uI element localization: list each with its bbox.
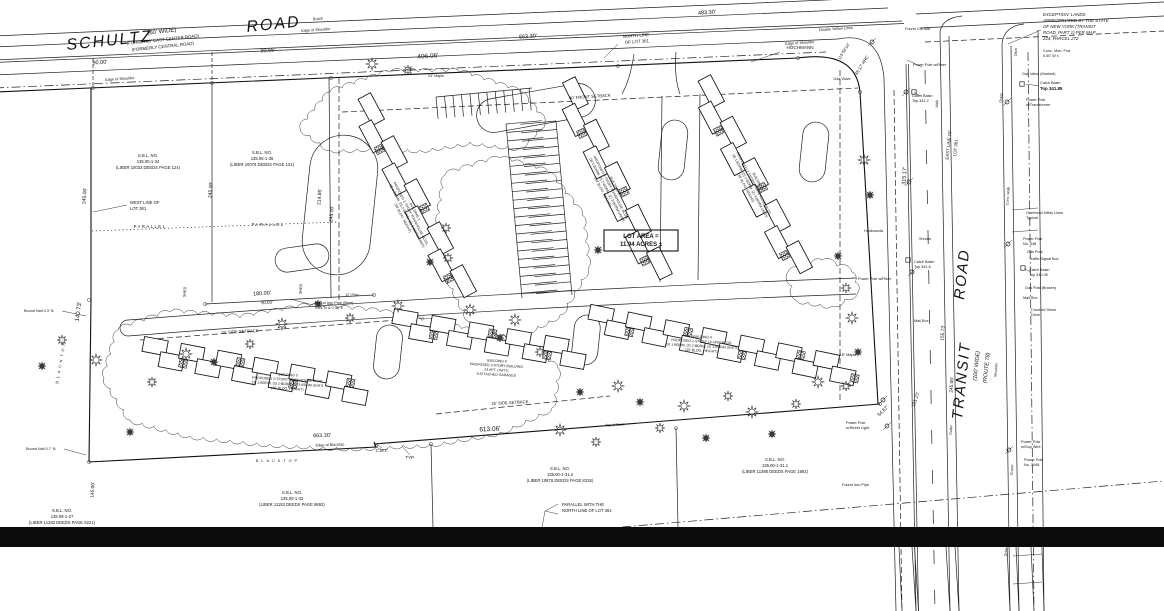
tree-icon bbox=[147, 377, 157, 387]
tree-icon bbox=[612, 380, 624, 392]
plan-label: Bound Nail 0.7' N bbox=[26, 447, 56, 451]
plan-label: Found Iron Pipe bbox=[842, 483, 869, 487]
plan-label: 135.00-1-31.2 bbox=[547, 472, 574, 477]
plan-label: 135.00-1-35 bbox=[251, 156, 274, 161]
plan-label: 18" Maple bbox=[840, 353, 857, 357]
monument-icon bbox=[87, 298, 90, 301]
boundary-lines bbox=[89, 52, 1164, 534]
plan-label: Ditch bbox=[1014, 48, 1019, 56]
landscape-cloud-outlines bbox=[102, 68, 859, 451]
plan-label: LOT 361 bbox=[130, 206, 147, 211]
tree-icon bbox=[366, 58, 378, 70]
parking-stall-line bbox=[512, 188, 548, 191]
plan-label: 483.30' bbox=[698, 9, 716, 16]
plan-label: Conc. Walk bbox=[1005, 186, 1010, 205]
schultz-road-word: ROAD bbox=[246, 13, 302, 36]
hatched-patio bbox=[429, 331, 438, 340]
plan-label: Power Pole bbox=[846, 421, 865, 425]
plan-label: 663.30' bbox=[313, 433, 331, 440]
plan-label: Brush bbox=[313, 17, 323, 22]
plan-label: Mail Box bbox=[914, 319, 929, 323]
tree-icon bbox=[841, 283, 851, 293]
proposed-buildings bbox=[142, 75, 860, 406]
plan-label: Mail Box bbox=[1023, 296, 1038, 300]
plan-label: 90.00' bbox=[92, 59, 107, 66]
building-unit bbox=[646, 247, 672, 280]
plan-label: Top 341.6 bbox=[914, 265, 931, 269]
hatched-patio bbox=[850, 374, 859, 383]
hatched-patio bbox=[625, 327, 634, 336]
plan-label: (ROUTE 78) bbox=[982, 352, 991, 383]
plan-label: Gas Valve bbox=[833, 77, 850, 81]
plan-label: OF NEW YORK (TRANSIT bbox=[1043, 24, 1096, 29]
plan-label: 24" Maple bbox=[428, 74, 444, 78]
tree-icon bbox=[655, 423, 665, 433]
building-unit bbox=[830, 366, 860, 386]
plan-label: Power Pole bbox=[1026, 98, 1045, 102]
plan-label: 45.17' ARC bbox=[854, 55, 870, 76]
parking-stall-line bbox=[511, 180, 547, 183]
plan-label: 140.73' bbox=[75, 302, 84, 322]
parking-stall-line bbox=[526, 180, 562, 183]
hatched-patio bbox=[346, 378, 355, 387]
plan-label: Gas Post (Broken) bbox=[1025, 286, 1057, 290]
parking-stall-line bbox=[461, 95, 463, 117]
parking-stall-line bbox=[515, 222, 551, 225]
tree-icon bbox=[591, 437, 601, 447]
plan-label: Edge of Shoulder bbox=[105, 76, 135, 82]
tree-icon bbox=[791, 399, 801, 409]
plan-label: Gravel bbox=[1010, 464, 1015, 475]
parking-stall-line bbox=[508, 146, 544, 149]
plan-label: 135.00-1-34 bbox=[137, 159, 160, 164]
plan-label: 613.06' bbox=[479, 425, 500, 433]
plan-label: 0.55' N & 0.32' E bbox=[315, 306, 344, 310]
parking-stall-line bbox=[506, 121, 542, 124]
plan-label: S.B.L. NO. bbox=[252, 150, 272, 155]
tree-icon bbox=[345, 313, 355, 323]
hatched-patio bbox=[488, 329, 497, 338]
tree-icon bbox=[834, 252, 842, 260]
parking-aisle-line bbox=[436, 88, 532, 97]
hatched-patio bbox=[178, 359, 187, 368]
parking-aisle-line bbox=[556, 121, 572, 295]
plan-label: Grass bbox=[999, 93, 1004, 103]
plan-label: 115°58'14" bbox=[837, 41, 852, 60]
parking-stall-line bbox=[495, 91, 497, 113]
driveway-stub bbox=[274, 242, 331, 273]
parking-stall-line bbox=[533, 265, 569, 268]
tree-icon bbox=[866, 191, 874, 199]
parking-stall-line bbox=[533, 256, 569, 259]
driveway-stub bbox=[372, 324, 404, 380]
parking-stall-line bbox=[504, 91, 506, 113]
plan-label: Drive bbox=[1031, 313, 1040, 317]
tree-icon bbox=[746, 406, 758, 418]
plan-label: Bound Nail 0.3' N bbox=[24, 309, 54, 313]
parking-stalls bbox=[436, 88, 572, 298]
plan-label: Power Pole w/Riser bbox=[913, 63, 947, 67]
plan-label: S.B.L. NO. bbox=[138, 153, 158, 158]
parking-stall-line bbox=[522, 138, 558, 141]
tree-icon bbox=[594, 246, 602, 254]
parking-stall-line bbox=[519, 256, 555, 259]
parking-stall-line bbox=[509, 155, 545, 158]
plan-label: Catch Basin bbox=[1029, 268, 1049, 272]
tree-icon bbox=[210, 358, 218, 366]
plan-label: 135.09-1-27 bbox=[51, 514, 74, 519]
parking-stall-line bbox=[511, 172, 547, 175]
plan-label: PARALLEL WITH THE bbox=[562, 502, 604, 507]
plan-label: 135.00-1-32 bbox=[281, 496, 304, 501]
plan-label: 25' SIDE SETBACK bbox=[221, 328, 259, 335]
plan-label: 0.50' W ± bbox=[1043, 54, 1059, 58]
plan-label: LOT 361 bbox=[952, 139, 959, 157]
plan-label: 245.00' bbox=[948, 377, 955, 393]
plan-label: OF LOT 361 bbox=[625, 38, 650, 45]
plan-label: Shrubs bbox=[919, 237, 931, 241]
building-unit bbox=[560, 350, 586, 369]
tree-icon bbox=[768, 430, 776, 438]
parking-stall-line bbox=[532, 248, 568, 251]
parking-stall-line bbox=[528, 206, 564, 209]
driveway-stub bbox=[299, 132, 381, 278]
plan-label: APPROPRIATED BY THE STATE bbox=[1042, 18, 1109, 23]
plan-label: Traffic Signal Box bbox=[1029, 257, 1059, 261]
plan-label: (LIBER 10033 DEEDS PAGE 124) bbox=[116, 165, 181, 170]
plan-label: EXCEPTION: LANDS bbox=[1043, 12, 1086, 17]
plan-label: Power Pole w/Riser bbox=[858, 277, 892, 281]
hatched-patio bbox=[236, 357, 245, 366]
plan-label: Gutter bbox=[949, 424, 954, 435]
parking-stall-line bbox=[513, 197, 549, 200]
tree-icon bbox=[464, 304, 476, 316]
power-pole-icon bbox=[1004, 240, 1012, 248]
plan-label: 180.00' bbox=[253, 291, 271, 298]
parking-stall-line bbox=[529, 214, 565, 217]
transit-road-lines-below-seam bbox=[899, 547, 1044, 611]
parking-stall-line bbox=[531, 240, 567, 243]
plan-label: 245.00' bbox=[81, 188, 88, 205]
power-pole-icon bbox=[879, 396, 887, 404]
plan-label: No. 2048 bbox=[1024, 463, 1039, 467]
parking-stall-line bbox=[487, 92, 489, 114]
plan-label: (LIBER 11153 DEEDS PAGE 8892) bbox=[259, 502, 325, 507]
parking-stall-line bbox=[515, 214, 551, 217]
plan-label: No. 348 bbox=[1023, 242, 1036, 246]
plan-label: Power Pole bbox=[1023, 237, 1042, 241]
parking-stall-line bbox=[508, 138, 544, 141]
plan-label: PARALLEL bbox=[252, 222, 285, 227]
plan-label: S.B.L. NO. bbox=[550, 466, 570, 471]
tree-icon bbox=[126, 428, 134, 436]
transit-road-lines bbox=[894, 16, 1044, 611]
plan-label: S.B.L. NO. bbox=[52, 508, 72, 513]
parking-stall-line bbox=[520, 273, 556, 276]
tree-icon bbox=[636, 398, 644, 406]
parking-stall-line bbox=[521, 130, 557, 133]
tree-icon bbox=[90, 354, 102, 366]
plan-label: 25' SIDE SETBACK bbox=[491, 399, 529, 406]
plan-label: (LIBER 11283 DEEDS PAGE 6221) bbox=[29, 520, 96, 525]
parking-stall-line bbox=[453, 95, 455, 117]
parking-stall-line bbox=[530, 223, 566, 226]
leader-lines bbox=[62, 30, 1041, 533]
plan-label: Catch Basin bbox=[1040, 81, 1060, 85]
plan-label: C.M.F. bbox=[376, 448, 389, 453]
parking-stall-line bbox=[517, 239, 553, 242]
tree-icon bbox=[723, 391, 733, 401]
plan-label: 90.55' bbox=[260, 47, 275, 54]
parking-stall-line bbox=[523, 146, 559, 149]
plan-label: 54.67' bbox=[877, 405, 890, 418]
plan-label: 135.00-1-31.1 bbox=[762, 463, 789, 468]
plan-label: 165.73' bbox=[939, 325, 946, 341]
plan-label: Hardwoods bbox=[864, 229, 883, 233]
plan-label: ROAD, PART 1) PER MAP bbox=[1043, 30, 1096, 35]
plan-label: BLACKTOP bbox=[256, 459, 300, 463]
tree-icon bbox=[812, 376, 824, 388]
driveway-stub bbox=[798, 121, 830, 183]
tree-symbols bbox=[38, 58, 874, 447]
plan-label: Gas Post bbox=[1027, 250, 1044, 254]
plan-label: SHED bbox=[183, 286, 188, 297]
catch-basin-icon bbox=[1021, 266, 1025, 270]
building-unit bbox=[764, 226, 792, 263]
parking-stall-line bbox=[526, 189, 562, 192]
svg-text:(35' BLDG. HEIGHT): (35' BLDG. HEIGHT) bbox=[271, 386, 304, 392]
plan-label: 245.00' bbox=[328, 206, 335, 223]
plan-label: 224, PARCEL 272 bbox=[1042, 36, 1079, 41]
building-label: BUILDING 6PROPOSED 3-STORY BUILDING,24 A… bbox=[469, 358, 524, 379]
parking-stall-line bbox=[518, 248, 554, 251]
catch-basin-icon bbox=[1020, 82, 1024, 86]
plan-label: Conc. Mon. Fnd. bbox=[1043, 49, 1071, 53]
plan-label: S.B.L. NO. bbox=[282, 490, 302, 495]
building-unit bbox=[562, 103, 590, 140]
hatched-patio bbox=[737, 350, 746, 359]
lot-area-line2: 11.94 ACRES ± bbox=[620, 242, 663, 248]
power-pole-icon bbox=[1003, 98, 1011, 106]
plan-label: Shoulder bbox=[994, 362, 999, 377]
site-plan-drawing: LOT AREA = 11.94 ACRES ± SCHULTZ ROAD TR… bbox=[0, 0, 1164, 611]
transit-road-word: ROAD bbox=[951, 248, 973, 301]
plan-label: (LIBER 10079 DEEDS PAGE 131) bbox=[230, 162, 295, 167]
tree-icon bbox=[496, 334, 504, 342]
plan-label: w/Transformer bbox=[1026, 103, 1051, 107]
plan-label: Catch Basin bbox=[914, 260, 934, 264]
lot-area-line1: LOT AREA = bbox=[623, 234, 659, 240]
plan-label: 315.17' bbox=[901, 167, 908, 185]
plan-label: BLACKTOP bbox=[55, 340, 67, 384]
plan-label: 214.85' bbox=[316, 189, 323, 206]
plan-label: w/Guy Wire bbox=[1021, 445, 1041, 449]
plan-label: Typical bbox=[1026, 216, 1038, 220]
plan-label: PARALLEL bbox=[134, 224, 167, 229]
tree-icon bbox=[576, 388, 584, 396]
plan-label: (100' WIDE) bbox=[972, 351, 981, 381]
parking-stall-line bbox=[523, 155, 559, 158]
building-unit bbox=[342, 386, 368, 405]
plan-label: Walk bbox=[935, 100, 940, 108]
plan-label: Edge of Shoulder bbox=[301, 27, 331, 33]
plan-label: HOCHMANN bbox=[786, 45, 813, 50]
parking-stall-line bbox=[525, 172, 561, 175]
parking-stall-line bbox=[524, 163, 560, 166]
plan-label: Overhead Utility Lines bbox=[1026, 211, 1063, 215]
svg-text:6 ATTACHED GARAGES: 6 ATTACHED GARAGES bbox=[477, 372, 517, 378]
tree-icon bbox=[426, 258, 434, 266]
plan-label: 406.06' bbox=[417, 52, 439, 60]
plan-label: Power Pole bbox=[1024, 458, 1043, 462]
plan-label: Gas Valve (Marked) bbox=[1022, 72, 1056, 76]
building-unit bbox=[698, 101, 726, 138]
hatched-patio bbox=[683, 327, 692, 336]
parking-stall-line bbox=[514, 205, 550, 208]
site-plan-sheet: LOT AREA = 11.94 ACRES ± SCHULTZ ROAD TR… bbox=[0, 0, 1164, 611]
parking-aisle-line bbox=[506, 124, 522, 298]
plan-label: WEST LINE OF bbox=[130, 200, 160, 205]
plan-label: S.B.L. NO. bbox=[765, 457, 785, 462]
plan-label: w/Street Light bbox=[846, 426, 870, 430]
plan-label: Found Cut Nail bbox=[905, 27, 930, 31]
svg-text:(35' BLDG. HEIGHT): (35' BLDG. HEIGHT) bbox=[685, 348, 718, 354]
building-unit bbox=[359, 120, 387, 157]
landscape-cloud bbox=[300, 68, 545, 153]
parking-stall-line bbox=[535, 282, 571, 285]
hatched-patio bbox=[796, 350, 805, 359]
parking-stall-line bbox=[530, 231, 566, 234]
plan-label: Found Iron Pipe (Bent) bbox=[315, 301, 354, 305]
parking-stall-line bbox=[478, 93, 480, 115]
parking-stall-line bbox=[470, 94, 472, 116]
plan-label: Top 342.05 bbox=[1029, 273, 1048, 277]
parking-stall-line bbox=[516, 231, 552, 234]
plan-label: TYP. bbox=[405, 455, 414, 460]
tree-icon bbox=[245, 339, 255, 349]
tree-icon bbox=[678, 400, 690, 412]
parking-stall-line bbox=[521, 282, 557, 285]
plan-label: Catch Basin bbox=[912, 94, 932, 98]
parking-stall-line bbox=[534, 273, 570, 276]
plan-label: 90.00' bbox=[261, 300, 273, 306]
power-pole-icon bbox=[868, 38, 876, 46]
plan-label: (LIBER 10878 DEEDS PAGE 8318) bbox=[527, 478, 594, 483]
power-pole-icon bbox=[883, 422, 891, 430]
building-unit bbox=[428, 249, 456, 286]
tree-icon bbox=[702, 434, 710, 442]
building-unit bbox=[450, 265, 476, 298]
parking-stall-line bbox=[512, 90, 514, 112]
parking-stall-line bbox=[519, 265, 555, 268]
plan-label: Power Pole bbox=[1021, 440, 1040, 444]
plan-label: 12" Pine bbox=[345, 293, 358, 297]
plan-label: 663.30' bbox=[519, 33, 537, 40]
plan-label: Top 341.85 bbox=[1040, 86, 1063, 91]
tree-icon bbox=[846, 312, 858, 324]
plan-label: Top 341.2 bbox=[912, 99, 929, 103]
plan-label: Edge of Blacktop bbox=[316, 443, 345, 448]
plan-label: Top of Bank bbox=[605, 422, 624, 427]
plan-label: 245.00' bbox=[207, 182, 214, 199]
plan-label: SHED bbox=[299, 283, 304, 294]
parking-stall-line bbox=[527, 197, 563, 200]
plan-label: Crushed Stone bbox=[1031, 308, 1056, 312]
scan-seam-band bbox=[0, 527, 1164, 547]
plan-label: (LIBER 11388 DEEDS PAGE 1692) bbox=[742, 469, 809, 474]
power-pole-icon bbox=[1005, 446, 1013, 454]
plan-label: NORTH LINE OF LOT 361 bbox=[562, 508, 612, 513]
tree-icon bbox=[38, 362, 46, 370]
parking-stall-line bbox=[536, 290, 572, 293]
plan-label: 145.00' bbox=[89, 482, 96, 498]
tree-icon bbox=[509, 314, 521, 326]
